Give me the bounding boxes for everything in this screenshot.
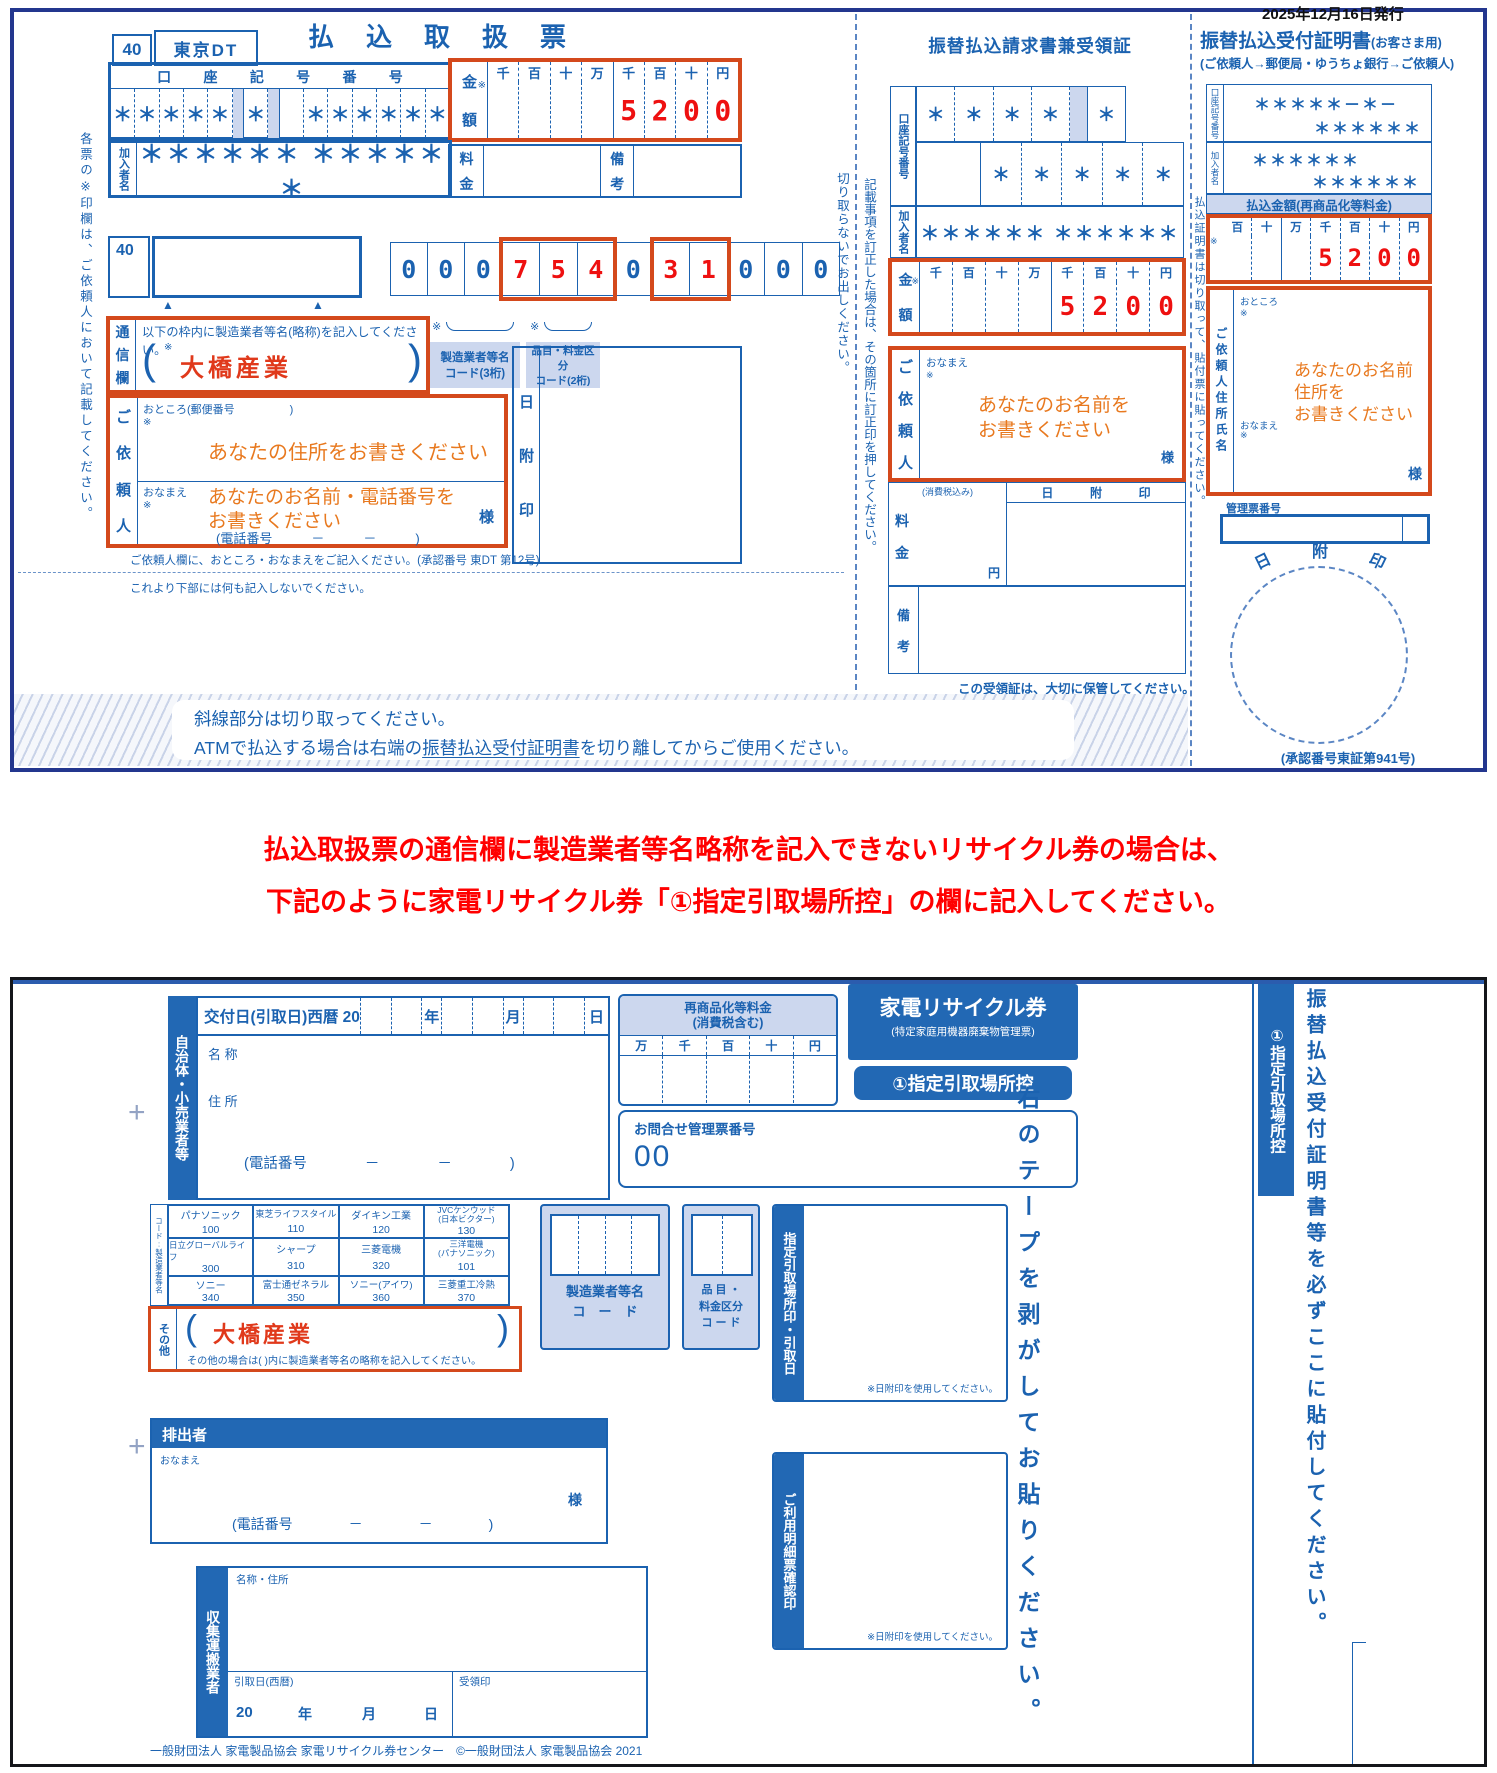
maker-code: 370 (458, 1292, 476, 1304)
amt-d[interactable]: 0 (1117, 282, 1150, 332)
slip-title-char: 込 (366, 17, 392, 54)
acct-cell[interactable]: ＊ (377, 89, 401, 138)
date-stamp-circle (1230, 566, 1408, 744)
lower-note: これより下部には何も記入しないでください。 (130, 580, 371, 596)
inquiry-number-box[interactable]: お問合せ管理票番号 00 (618, 1110, 1078, 1188)
cl-char: 人 (116, 515, 131, 536)
ra-char: 金 (899, 270, 913, 290)
maker-name: 日立グローバルライフ (169, 1239, 252, 1263)
maker-cell[interactable]: ソニー(アイワ)360 (339, 1276, 424, 1305)
r-cell[interactable]: ＊ (1143, 143, 1183, 205)
slip-title-char: 票 (540, 17, 566, 54)
col-h: 十 (1117, 262, 1150, 282)
maker-name: シャープ (276, 1241, 315, 1256)
registration-mark: + (128, 1430, 146, 1464)
maker-cell[interactable]: 三菱電機320 (339, 1238, 424, 1276)
client-address-field[interactable]: おところ(郵便番号 ) ※ あなたの住所をお書きください (138, 398, 504, 482)
receipt-remarks-label: 備考 (889, 587, 919, 673)
date-cell[interactable] (473, 998, 504, 1034)
margin-note: 各票の※印欄は、ご依頼人において記載してください。 (76, 132, 95, 536)
rds-char: 日 (1041, 484, 1053, 501)
r-cell[interactable]: ＊ (994, 87, 1032, 141)
amount-label-char: 金 (462, 71, 477, 92)
sama-suffix: 様 (568, 1490, 582, 1510)
collector-label: 収集運搬業者 (198, 1568, 228, 1736)
cert-client-field[interactable]: おところ ※ あなたのお名前 住所を お書きください おなまえ ※ 様 (1234, 290, 1428, 492)
acct-sep (268, 89, 279, 138)
cert-amount-header: 払込金額(再商品化等料金) (1206, 194, 1432, 214)
ocr-digit: 0 (428, 242, 466, 296)
hdr-char: 号 (389, 67, 403, 87)
amt-d[interactable]: 0 (1150, 282, 1182, 332)
emitter-box[interactable]: 排出者 おなまえ 様 (電話番号 － － ) (150, 1418, 608, 1544)
collector-date-prefix: 20 (236, 1704, 253, 1721)
slip-title-char: 取 (424, 17, 450, 54)
recycle-fee-box: 再商品化等料金 (消費税含む) 万千百十円 (618, 994, 838, 1106)
receipt-amount-headers: 千百十万千百十円 (920, 262, 1182, 282)
item-code-caption: 品 目 ・ 料金区分 コ ー ド (684, 1282, 758, 1332)
r-cell[interactable]: ＊ (1103, 143, 1144, 205)
banner-line2-post: を切り離してからご使用ください。 (580, 738, 859, 758)
tax-note: (消費税込み) (889, 483, 1006, 498)
col-h: 十 (750, 1036, 793, 1055)
receipt-amount-digits[interactable]: 5200 (920, 282, 1182, 332)
fee-blank[interactable] (484, 146, 600, 196)
address-label: おところ (1234, 290, 1428, 308)
col-h: 円 (708, 62, 738, 82)
paren-open: ( (142, 336, 156, 384)
rds-char: 附 (1090, 484, 1102, 501)
cert-member-label: 加入者名 (1207, 143, 1224, 193)
amt-d[interactable] (920, 282, 953, 332)
hdr-char: 記 (250, 67, 264, 87)
other-maker-box: その他 ( 大橋産業 ) その他の場合は( )内に製造業者等名の略称を記入してく… (148, 1306, 522, 1372)
rc-char: 依 (898, 388, 913, 409)
r-cell[interactable]: ＊ (1032, 87, 1070, 141)
other-maker-entry[interactable]: 大橋産業 (213, 1317, 313, 1349)
issue-date-row[interactable]: 交付日(引取日)西暦 20 年 月 日 (196, 996, 610, 1036)
rc-char: 人 (898, 452, 913, 473)
maker-code: 300 (202, 1263, 220, 1275)
maker-cell[interactable]: JVCケンウッド (日本ビクター)130 (424, 1205, 509, 1238)
ref-mark: ※ (138, 417, 504, 428)
col-h: 十 (676, 62, 707, 82)
cert-account-label: 口座記号番号 (1207, 85, 1224, 141)
ref-mark: ※ (164, 342, 172, 353)
amt-d[interactable]: 0 (676, 82, 707, 138)
receipt-account-label: 口座記号番号 (890, 86, 916, 206)
amt-d[interactable]: 5 (614, 82, 645, 138)
col-h: 万 (620, 1036, 663, 1055)
r-cell[interactable]: ＊ (955, 87, 993, 141)
account-number-header: 口座記号番号 (111, 65, 449, 89)
rc-char: ご (898, 356, 913, 377)
col-h: 百 (707, 1036, 750, 1055)
maker-code: 320 (372, 1260, 390, 1272)
ts-char: 信 (116, 345, 130, 365)
r-cell[interactable] (917, 143, 981, 205)
col-h: 円 (794, 1036, 836, 1055)
maker-name: ダイキン工業 (351, 1207, 411, 1222)
arrow-mark: ▲ (312, 298, 324, 312)
emitter-name-label: おなまえ (152, 1448, 606, 1467)
mgmt-divider (1402, 517, 1403, 541)
cert-account-value1: ＊＊＊＊＊－＊－ (1254, 91, 1398, 115)
fee-cell[interactable] (794, 1056, 836, 1103)
ocr-digit: 0 (765, 242, 803, 296)
col-h: 十 (1370, 218, 1399, 236)
ocr-digit: 0 (390, 242, 428, 296)
maker-name: JVCケンウッド (日本ビクター) (437, 1206, 495, 1225)
detail-stamp-note: ※日附印を使用してください。 (867, 1629, 998, 1643)
date-cell[interactable] (441, 998, 473, 1034)
ref-mark: ※ (920, 370, 1182, 381)
acct-cell[interactable]: ＊ (401, 89, 425, 138)
amount-box: 金額 ※ 千百十万千百十円 5200 (448, 58, 742, 142)
maker-name: ソニー(アイワ) (350, 1277, 413, 1291)
collector-name-label: 名称・住所 (228, 1568, 646, 1587)
correspondence-box: 通信欄 以下の枠内に製造業者等名(略称)を記入してください。 ( ※ 大橋産業 … (106, 316, 430, 394)
detail-stamp-label: ご利用明細票確認印 (774, 1454, 804, 1648)
recycle-fee-cols: 万千百十円 (620, 1036, 836, 1056)
ic-cell[interactable] (723, 1216, 752, 1274)
maker-name-entry[interactable]: 大橋産業 (180, 348, 292, 383)
fee-cell[interactable] (620, 1056, 663, 1103)
retailer-info-box[interactable]: 名 称 住 所 (電話番号 － － ) (196, 1036, 610, 1200)
amt-d: 0 (1370, 236, 1399, 280)
fee-cell[interactable] (707, 1056, 750, 1103)
address-label: おところ(郵便番号 ) (138, 398, 504, 417)
amt-d[interactable] (582, 82, 613, 138)
r-cell[interactable]: ＊ (981, 143, 1022, 205)
remarks-blank[interactable] (634, 146, 740, 196)
ocr-digit: 0 (465, 242, 503, 296)
date-cell[interactable] (360, 998, 392, 1034)
recycle-fee-cells[interactable] (620, 1056, 836, 1103)
ticket-subtitle: (特定家庭用機器廃棄物管理票) (848, 1022, 1078, 1039)
registration-mark: + (128, 1096, 146, 1130)
cert-amount-box: ※ 百十万千百十円 5200 (1206, 214, 1432, 284)
emitter-label: 排出者 (152, 1420, 606, 1448)
amt-d[interactable] (1019, 282, 1052, 332)
brace-mark (544, 322, 592, 331)
banner-line2-link: 振替払込受付証明書 (422, 738, 580, 758)
r-cell[interactable]: ＊ (1022, 143, 1063, 205)
collector-date-field[interactable]: 引取日(西暦) 20 年 月 日 (228, 1672, 453, 1736)
amount-col-headers: 千百十万千百十円 (488, 62, 738, 82)
cut-banner: 斜線部分は切り取ってください。 ATMで払込する場合は右端の振替払込受付証明書を… (172, 700, 1074, 760)
maker-name: 富士通ゼネラル (263, 1277, 330, 1291)
receipt-member-label: 加入者名 (890, 206, 916, 258)
item-code-cells[interactable] (691, 1214, 753, 1276)
maker-cell[interactable]: パナソニック100 (168, 1205, 253, 1238)
certificate-account-box: 口座記号番号 ＊＊＊＊＊－＊－ ＊＊＊＊＊＊ (1206, 84, 1432, 142)
certificate-title: 振替払込受付証明書(お客さま用) (1200, 26, 1488, 53)
paren-open: ( (185, 1307, 197, 1349)
amt-d[interactable] (488, 82, 519, 138)
member-value: ＊＊＊＊＊＊ ＊＊＊＊＊＊ (137, 143, 449, 195)
maker-cell[interactable]: ダイキン工業120 (339, 1205, 424, 1238)
cl-char: ご (116, 406, 131, 427)
cert-client-label: ご依頼人住所氏名 (1210, 290, 1234, 492)
member-name-box: 加入者名 ＊＊＊＊＊＊ ＊＊＊＊＊＊ (108, 140, 452, 198)
maker-cell[interactable]: 三菱重工冷熱370 (424, 1276, 509, 1305)
receipt-remarks-blank[interactable] (919, 587, 1185, 673)
dashed-rule (18, 572, 844, 573)
mc-cell[interactable] (579, 1216, 606, 1274)
amt-d[interactable] (519, 82, 550, 138)
col-h: 万 (1282, 218, 1311, 236)
sama-suffix: 様 (1408, 464, 1422, 484)
inquiry-label: お問合せ管理票番号 (620, 1112, 1076, 1138)
ds-char: 印 (519, 499, 534, 520)
cert-member-value2: ＊＊＊＊＊＊ (1312, 169, 1420, 193)
strip-divider (1252, 980, 1254, 1764)
acct-cell[interactable]: ＊ (353, 89, 377, 138)
cert-member-value1: ＊＊＊＊＊＊ (1252, 147, 1360, 171)
amount-label-cell: 金額 ※ (452, 62, 488, 138)
receipt-client-field[interactable]: おなまえ ※ あなたのお名前を お書きください 様 (920, 350, 1182, 478)
maker-name: ソニー (196, 1277, 226, 1292)
receipt-client-label: ご依頼人 (892, 350, 920, 478)
receipt-account-row2[interactable]: ＊＊＊＊＊ (916, 142, 1184, 206)
ref-mark: ※ (1210, 218, 1223, 280)
col-h: 万 (582, 62, 613, 82)
ocr-digit-maker: 4 (578, 242, 616, 296)
footer-credit: 一般財団法人 家電製品協会 家電リサイクル券センター ©一般財団法人 家電製品協… (150, 1742, 642, 1759)
col-h: 千 (663, 1036, 706, 1055)
acct-cell[interactable]: ＊ (328, 89, 352, 138)
fee-cell[interactable] (663, 1056, 706, 1103)
correction-note: 記載事項を訂正した場合は、その箇所に訂正印を押してください。 (860, 178, 879, 598)
day-label: 日 (585, 1006, 608, 1027)
amt-d[interactable] (953, 282, 986, 332)
col-h: 千 (614, 62, 645, 82)
col-h: 百 (1223, 218, 1252, 236)
fee-cell[interactable] (750, 1056, 793, 1103)
maker-cell[interactable]: 東芝ライフスタイル110 (253, 1205, 338, 1238)
detail-stamp-area[interactable]: ※日附印を使用してください。 (804, 1454, 1006, 1648)
r-cell[interactable]: ＊ (1088, 87, 1125, 141)
maker-name: パナソニック (181, 1207, 241, 1222)
issue-date: 2025年12月16日発行 (1262, 3, 1404, 24)
page: 2025年12月16日発行 各票の※印欄は、ご依頼人において記載してください。 … (0, 0, 1497, 1773)
col-h: 円 (1150, 262, 1182, 282)
ticket-title-block: 家電リサイクル券 (特定家庭用機器廃棄物管理票) (848, 984, 1078, 1060)
recycle-fee-title: 再商品化等料金 (消費税含む) (620, 996, 836, 1036)
name-hint: あなたのお名前・電話番号を お書きください (208, 486, 455, 534)
rr-char: 考 (897, 636, 910, 655)
ref-mark: ※ (432, 320, 441, 333)
notice-line1: 払込取扱票の通信欄に製造業者等名略称を記入できないリサイクル券の場合は、 (0, 828, 1497, 867)
receipt-name-hint: あなたのお名前を お書きください (978, 394, 1130, 443)
amt-d[interactable]: 2 (1084, 282, 1117, 332)
acct-cell[interactable]: ＊ (244, 89, 268, 138)
paste-corner-mark (1352, 1642, 1353, 1764)
collector-name-field[interactable]: 名称・住所 (228, 1568, 646, 1672)
receipt-amount-box: 金額 ※ 千百十万千百十円 5200 (888, 258, 1186, 336)
maker-cell[interactable]: シャープ310 (253, 1238, 338, 1276)
mc-cell[interactable] (606, 1216, 633, 1274)
account-number-cells[interactable]: ＊＊＊＊＊＊＊＊＊＊＊＊ (111, 89, 449, 138)
date-cell[interactable] (392, 998, 423, 1034)
acct-cell[interactable]: ＊ (304, 89, 328, 138)
cut-note: 切り取らないでお出しください。 (833, 172, 852, 412)
ocr-digit: 0 (615, 242, 653, 296)
day-label: 日 (424, 1704, 438, 1724)
certificate-title-main: 振替払込受付証明書 (1200, 31, 1371, 52)
emitter-phone-label: (電話番号 － － ) (232, 1514, 493, 1534)
r-cell[interactable]: ＊ (1062, 143, 1103, 205)
acct-cell[interactable]: ＊ (184, 89, 208, 138)
hdr-char: 座 (203, 67, 217, 87)
municipality-label: 自治体・小売業者等 (168, 996, 196, 1200)
r-cell[interactable]: ＊ (917, 87, 955, 141)
date-stamp-label: 日附印 (514, 348, 540, 562)
retailer-address-label: 住 所 (198, 1063, 608, 1110)
maker-table-side-label: コード:製造業者等名 (150, 1204, 167, 1306)
issue-date-label: 交付日(引取日)西暦 20 (198, 1005, 360, 1027)
year-label: 年 (422, 1006, 441, 1027)
receipt-member-value: ＊＊＊＊＊＊ ＊＊＊＊＊＊ (916, 206, 1184, 258)
date-cell[interactable] (523, 998, 555, 1034)
right-copy-badge: ①指定引取場所控 (1258, 984, 1294, 1196)
receipt-client-box: ご依頼人 おなまえ ※ あなたのお名前を お書きください 様 (888, 346, 1186, 482)
rf-char: 金 (895, 543, 909, 563)
maker-code: 100 (202, 1224, 220, 1236)
maker-cell[interactable]: 三洋電機 (パナソニック)101 (424, 1238, 509, 1276)
amt-d: 5 (1311, 236, 1340, 280)
maker-code: 130 (458, 1225, 476, 1237)
ref-mark: ※ (530, 320, 539, 333)
amt-d[interactable] (551, 82, 582, 138)
receipt-date-stamp-header: 日附印 (1007, 483, 1185, 503)
maker-code-caption: 製造業者等名 コ ー ド (542, 1282, 668, 1321)
cert-account-value2: ＊＊＊＊＊＊ (1314, 115, 1422, 139)
correspondence-label: 通信欄 (110, 320, 136, 390)
acct-cell[interactable] (280, 89, 304, 138)
maker-cell[interactable]: 富士通ゼネラル350 (253, 1276, 338, 1305)
ref-mark: ※ (1234, 308, 1428, 319)
maker-code: 110 (288, 1223, 305, 1235)
col-h: 十 (986, 262, 1019, 282)
client-box: ご依頼人 おところ(郵便番号 ) ※ あなたの住所をお書きください おなまえ ※… (106, 394, 508, 548)
maker-table: コード:製造業者等名 パナソニック100 東芝ライフスタイル110 ダイキン工業… (150, 1204, 510, 1306)
name-label: おなまえ (920, 350, 1182, 370)
cl-char: 頼 (116, 479, 131, 500)
client-name-field[interactable]: おなまえ ※ あなたのお名前・電話番号を お書きください 様 (電話番号 － －… (138, 482, 504, 548)
rf-char: 料 (895, 511, 909, 531)
paste-corner-mark (1352, 1642, 1366, 1643)
amt-d[interactable]: 5 (1052, 282, 1085, 332)
maker-name: 三菱電機 (361, 1241, 401, 1256)
hdr-char: 番 (342, 67, 356, 87)
ocr-name-box[interactable] (152, 236, 362, 298)
cut-line (855, 14, 857, 690)
col-h: 十 (551, 62, 582, 82)
ref-mark: ※ (911, 276, 919, 287)
remarks-label: 備考 (600, 146, 634, 196)
approval-number: (承認番号東証第941号) (1238, 748, 1458, 767)
inquiry-value: 00 (620, 1138, 1076, 1174)
ds-char: 附 (519, 445, 534, 466)
receipt-fee-box: (消費税込み) 料金 円 日附印 (888, 482, 1186, 586)
collector-date-label: 引取日(西暦) (228, 1672, 452, 1689)
fee-char: 料 (460, 149, 474, 169)
acct-cell[interactable]: ＊ (426, 89, 449, 138)
col-h: 千 (920, 262, 953, 282)
pickup-stamp-area[interactable]: ※日附印を使用してください。 (804, 1206, 1006, 1400)
acct-cell[interactable]: ＊ (135, 89, 159, 138)
detail-stamp-box: ご利用明細票確認印 ※日附印を使用してください。 (772, 1452, 1008, 1650)
fee-label: 料金 (450, 146, 484, 196)
cl-char: 依 (116, 442, 131, 463)
amt-d: 0 (1400, 236, 1428, 280)
receipt-stamp-field[interactable]: 受領印 (453, 1672, 646, 1736)
maker-code: 120 (372, 1224, 390, 1236)
col-h: 千 (1052, 262, 1085, 282)
ts-char: 欄 (116, 368, 130, 388)
account-number-box: 口座記号番号 ＊＊＊＊＊＊＊＊＊＊＊＊ (108, 62, 452, 140)
amt-d (1282, 236, 1311, 280)
ticket-title: 家電リサイクル券 (848, 984, 1078, 1022)
ic-cell[interactable] (693, 1216, 723, 1274)
acct-cell[interactable]: ＊ (208, 89, 232, 138)
cert-client-hint: あなたのお名前 住所を お書きください (1294, 360, 1413, 426)
phone-label: (電話番号 － － ) (216, 528, 420, 547)
other-note: その他の場合は( )内に製造業者等名の略称を記入してください。 (187, 1352, 481, 1367)
ocr-digit-row: 000754031000 (390, 242, 840, 296)
yen-label: 円 (988, 564, 1000, 581)
acct-sep (233, 89, 244, 138)
amt-d (1223, 236, 1252, 280)
ocr-digit-item: 1 (690, 242, 728, 296)
other-label: その他 (151, 1309, 177, 1369)
receipt-account-row1[interactable]: ＊＊＊＊＊ (916, 86, 1126, 142)
amt-d[interactable]: 2 (645, 82, 676, 138)
slip-title-char: 払 (308, 17, 334, 54)
month-label: 月 (362, 1704, 376, 1724)
maker-code: 310 (287, 1260, 305, 1272)
maker-code-label: 製造業者等名 コード(3桁) (430, 342, 520, 388)
paren-close: ) (497, 1307, 509, 1349)
amt-d[interactable] (986, 282, 1019, 332)
amount-digits[interactable]: 5200 (488, 82, 738, 138)
maker-code-cells[interactable] (550, 1214, 660, 1276)
maker-cell[interactable]: ソニー340 (168, 1276, 253, 1305)
mc-cell[interactable] (632, 1216, 658, 1274)
acct-cell[interactable]: ＊ (111, 89, 135, 138)
item-code-entry-box: 品 目 ・ 料金区分 コ ー ド (682, 1204, 760, 1350)
date-cell[interactable] (554, 998, 585, 1034)
amt-d[interactable]: 0 (708, 82, 738, 138)
acct-cell[interactable]: ＊ (160, 89, 184, 138)
date-stamp-area (540, 348, 740, 562)
year-label: 年 (298, 1704, 312, 1724)
ocr-digit: 0 (728, 242, 766, 296)
cert-side-note: 払込証明書は切り取って、貼付票に貼ってください。 (1191, 196, 1207, 566)
maker-cell[interactable]: 日立グローバルライフ300 (168, 1238, 253, 1276)
month-label: 月 (504, 1006, 523, 1027)
col-h: 百 (953, 262, 986, 282)
notice-line2: 下記のように家電リサイクル券「①指定引取場所控」の欄に記入してください。 (0, 880, 1497, 919)
col-h: 百 (1084, 262, 1117, 282)
maker-name: 三菱重工冷熱 (438, 1277, 495, 1291)
mc-cell[interactable] (552, 1216, 579, 1274)
banner-line2: ATMで払込する場合は右端の振替払込受付証明書を切り離してからご使用ください。 (172, 731, 1074, 760)
retailer-name-label: 名 称 (198, 1036, 608, 1063)
sama-suffix: 様 (1161, 447, 1174, 466)
